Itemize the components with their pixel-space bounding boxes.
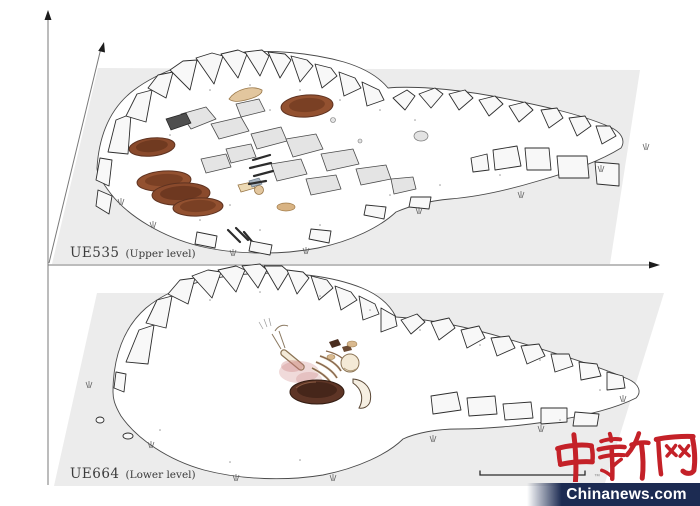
skull xyxy=(341,354,359,372)
small-vessel xyxy=(277,203,295,211)
depth-axis-arrowhead xyxy=(98,42,105,53)
lower-level-sublabel: (Lower level) xyxy=(126,469,196,481)
trademark-symbol: ™ xyxy=(594,474,600,480)
pebble xyxy=(358,139,362,143)
chinanews-banner: Chinanews.com xyxy=(527,483,700,506)
burial-bowl xyxy=(290,380,344,404)
lower-level-code: UE664 xyxy=(70,466,120,482)
bone-bit xyxy=(347,341,357,347)
x-axis-arrowhead xyxy=(649,262,660,269)
upper-level-code: UE535 xyxy=(70,245,120,261)
pebble xyxy=(414,131,428,141)
bone-bit xyxy=(327,355,335,360)
upper-level-label: UE535(Upper level) xyxy=(70,242,196,261)
figure-canvas: UE535(Upper level) UE664(Lower level) 中新… xyxy=(0,0,700,506)
logo-cn-calligraphy xyxy=(554,428,700,482)
lower-level-label: UE664(Lower level) xyxy=(70,463,196,482)
pebble xyxy=(331,118,336,123)
upper-level-sublabel: (Upper level) xyxy=(126,248,196,260)
bone-disc xyxy=(255,186,264,195)
z-axis-arrowhead xyxy=(45,10,52,20)
